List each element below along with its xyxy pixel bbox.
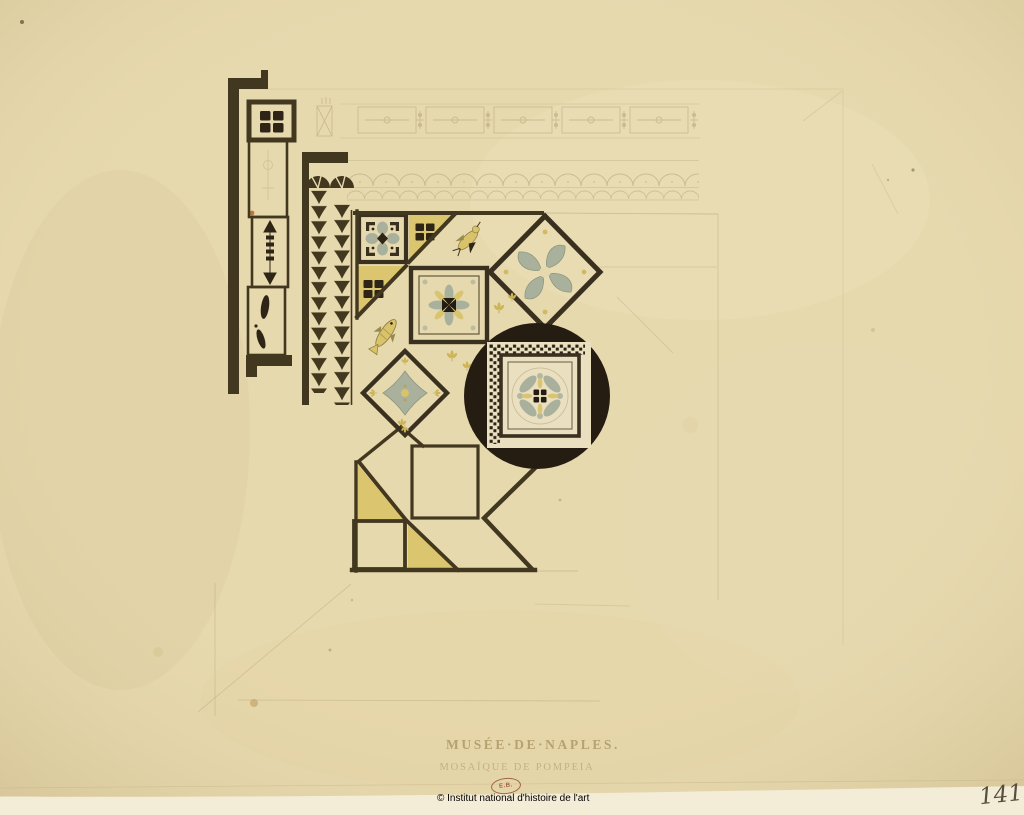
scanned-drawing-page: MUSÉE·DE·NAPLES. MOSAÏQUE DE POMPEIA E.B… bbox=[0, 0, 1024, 815]
tile-quatrefoil-square bbox=[359, 215, 406, 262]
central-medallion bbox=[464, 323, 610, 469]
pencil-scallop-band bbox=[347, 161, 699, 201]
page-number: 141 bbox=[978, 780, 1024, 810]
pencil-title-line1: MUSÉE·DE·NAPLES. bbox=[446, 737, 610, 753]
copyright-caption: © Institut national d'histoire de l'art bbox=[437, 793, 589, 804]
pencil-title-line2: MOSAÏQUE DE POMPEIA bbox=[432, 762, 602, 773]
mosaic-study-drawing bbox=[0, 0, 1024, 815]
